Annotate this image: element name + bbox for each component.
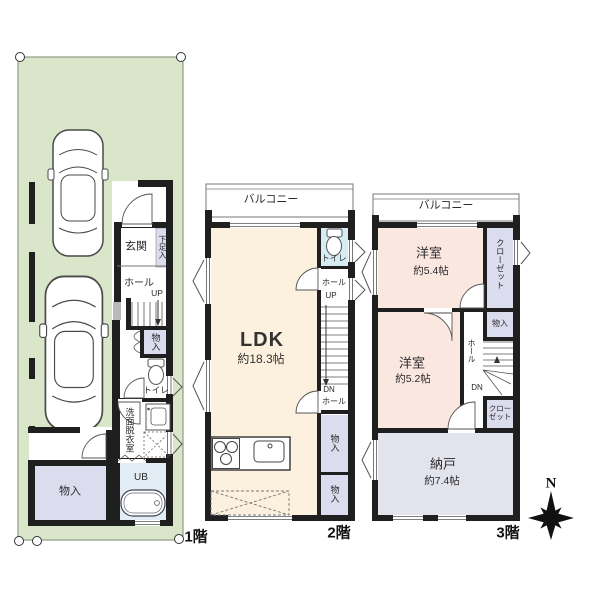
balcony-label-3f: バルコニー <box>419 201 474 212</box>
room-size-ldk: 約18.3帖 <box>237 353 284 365</box>
room-label-bath: UB <box>134 473 148 483</box>
balcony-label-2f: バルコニー <box>244 195 299 206</box>
stairs-dn-label-3f: DN <box>471 384 483 392</box>
car-2-icon <box>40 276 108 430</box>
kitchen-counter <box>211 437 290 470</box>
room-label-shoe-storage: 下足入 <box>158 235 166 259</box>
room-label-closet-a: クローゼット <box>496 239 505 290</box>
room-size-bedroom-b: 約5.2帖 <box>395 374 431 385</box>
toilet-fixture-2f <box>327 229 343 256</box>
floorplan-drawing <box>0 0 600 600</box>
room-label-hall-lower-2f: ホール <box>322 398 346 406</box>
room-label-hall-1f: ホール <box>124 279 154 289</box>
stairs-dn-label-2f: DN <box>323 386 335 394</box>
toilet-fixture-1f <box>148 359 164 385</box>
stairs-up-label-2f: UP <box>325 292 336 300</box>
room-label-hall-3f: ホール <box>467 339 475 363</box>
room-label-storage-hall-1f: 物入 <box>151 333 160 351</box>
floorplan-page: 玄関 下足入 ホール UP 物入 トイレ 洗面脱衣室 UB 物入 1階 バルコニ… <box>0 0 600 600</box>
room-label-storage-a-2f: 物入 <box>330 434 339 452</box>
room-label-ldk: LDK <box>240 330 284 350</box>
room-size-nando: 約7.4帖 <box>424 476 460 487</box>
room-label-toilet-1f: トイレ <box>143 386 169 395</box>
bathtub-icon <box>121 490 165 516</box>
kitchen-sink-icon <box>254 441 284 462</box>
compass-north-label: N <box>546 477 557 492</box>
room-label-bedroom-b: 洋室 <box>399 357 425 370</box>
room-label-washroom: 洗面脱衣室 <box>125 408 134 453</box>
room-label-bedroom-a: 洋室 <box>416 247 442 260</box>
floor-label-2f: 2階 <box>327 526 350 541</box>
room-label-storage-1f: 物入 <box>59 487 81 498</box>
room-label-nando: 納戸 <box>430 458 456 471</box>
washbasin-icon <box>146 404 170 430</box>
room-label-hall-upper-2f: ホール <box>322 279 346 287</box>
stairs-up-label-1f: UP <box>151 289 163 298</box>
room-size-bedroom-a: 約5.4帖 <box>413 266 449 277</box>
room-label-storage-b-2f: 物入 <box>330 485 339 503</box>
room-label-genkan: 玄関 <box>125 242 147 253</box>
room-label-toilet-2f: トイレ <box>321 254 347 263</box>
compass-icon <box>528 491 574 540</box>
room-label-closet-b: クローゼット <box>487 405 513 422</box>
car-1-icon <box>48 130 108 256</box>
room-label-storage-3f: 物入 <box>492 320 508 328</box>
floor-label-3f: 3階 <box>496 526 519 541</box>
floor-label-1f: 1階 <box>184 530 207 545</box>
